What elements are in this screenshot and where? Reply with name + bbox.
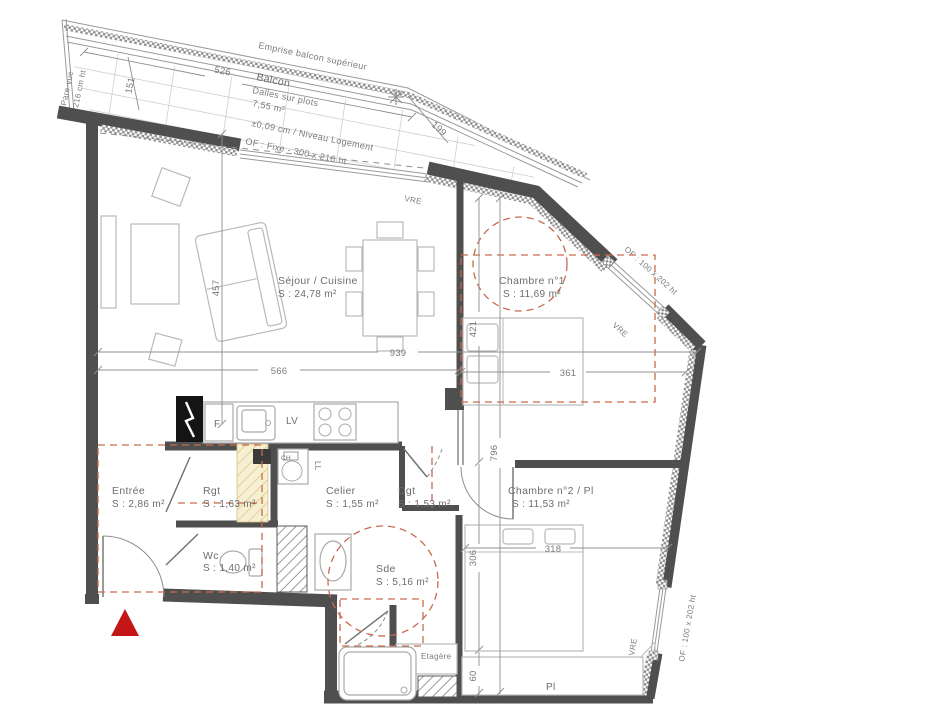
chair xyxy=(377,222,403,238)
label-dgt: Dgt xyxy=(398,485,415,497)
dining-table xyxy=(363,240,417,336)
dim-939: 939 xyxy=(390,348,406,359)
label-sde: Sde xyxy=(376,563,396,575)
washbasin xyxy=(315,534,351,590)
chair xyxy=(418,247,434,271)
duct-hatch-etagere xyxy=(418,676,457,697)
rgt-door xyxy=(166,457,190,512)
area-celier: S : 1,55 m² xyxy=(326,499,379,510)
dgt-door xyxy=(404,449,442,477)
label-placard: Pl xyxy=(546,682,556,693)
label-chambre1: Chambre n°1 xyxy=(499,275,565,287)
balcony-survey-mark xyxy=(388,89,404,105)
dim-306: 306 xyxy=(468,550,479,566)
area-sde: S : 5,16 m² xyxy=(376,577,429,588)
sde-door xyxy=(345,611,388,646)
floor-plan-page: Emprise balcon supérieur 526 Balcon Dall… xyxy=(0,0,940,705)
entrance-marker-triangle xyxy=(111,609,139,636)
area-chambre2: S : 11,53 m² xyxy=(512,499,570,510)
balcony-dim-526: 526 xyxy=(213,65,231,79)
area-rgt: S : 1,63 m² xyxy=(203,499,256,510)
area-sejour: S : 24,78 m² xyxy=(278,289,337,300)
label-water-heater: CH xyxy=(281,455,291,462)
label-celier: Celier xyxy=(326,485,356,497)
armchair xyxy=(149,333,182,366)
dim-361: 361 xyxy=(560,368,576,379)
chair xyxy=(346,292,362,316)
vre-label-bay: VRE xyxy=(404,194,423,206)
bed-chambre2 xyxy=(465,525,583,651)
dim-796: 796 xyxy=(489,445,500,461)
chambre2-door xyxy=(461,467,513,519)
area-entree: S : 2,86 m² xyxy=(112,499,165,510)
label-etagere: Etagère xyxy=(421,652,452,661)
shower xyxy=(339,647,416,700)
area-dgt: S : 1,53 m² xyxy=(398,499,451,510)
side-table xyxy=(152,168,190,206)
vre-label-right: VRE xyxy=(627,638,639,657)
rug xyxy=(131,224,179,304)
floor-plan-canvas: Emprise balcon supérieur 526 Balcon Dall… xyxy=(0,0,940,705)
wall-stub-lines xyxy=(458,410,463,465)
kitchen-sink xyxy=(237,406,275,440)
of-window-label-2: OF : 100 x 202 ht xyxy=(677,594,698,663)
dim-421: 421 xyxy=(468,321,479,337)
electrical-panel xyxy=(176,396,203,442)
bed-chambre1 xyxy=(463,318,583,405)
chair xyxy=(418,292,434,316)
label-sejour: Séjour / Cuisine xyxy=(278,275,358,287)
sideboard xyxy=(101,216,116,308)
label-wc: Wc xyxy=(203,550,219,562)
wc-door xyxy=(166,534,198,565)
label-entree: Entrée xyxy=(112,485,145,497)
dim-318: 318 xyxy=(545,544,561,555)
cooktop xyxy=(314,404,356,440)
vre-label-diagonal: VRE xyxy=(611,321,630,339)
chair xyxy=(346,247,362,271)
dim-566: 566 xyxy=(271,366,287,377)
label-dishwasher: LV xyxy=(286,416,298,427)
label-chambre2: Chambre n°2 / Pl xyxy=(508,485,594,497)
label-fridge: F xyxy=(214,419,220,430)
label-washer: LL xyxy=(313,461,322,471)
dim-60: 60 xyxy=(468,671,479,682)
balcony-dim-199: 199 xyxy=(429,120,449,139)
label-rgt: Rgt xyxy=(203,485,220,497)
area-wc: S : 1,40 m² xyxy=(203,563,256,574)
duct-hatch-wc xyxy=(277,526,307,592)
area-chambre1: S : 11,69 m² xyxy=(503,289,561,300)
sofa xyxy=(195,222,288,343)
roller-shutter-line xyxy=(100,133,424,168)
entrance-door xyxy=(103,536,164,597)
dim-457: 457 xyxy=(211,280,222,296)
